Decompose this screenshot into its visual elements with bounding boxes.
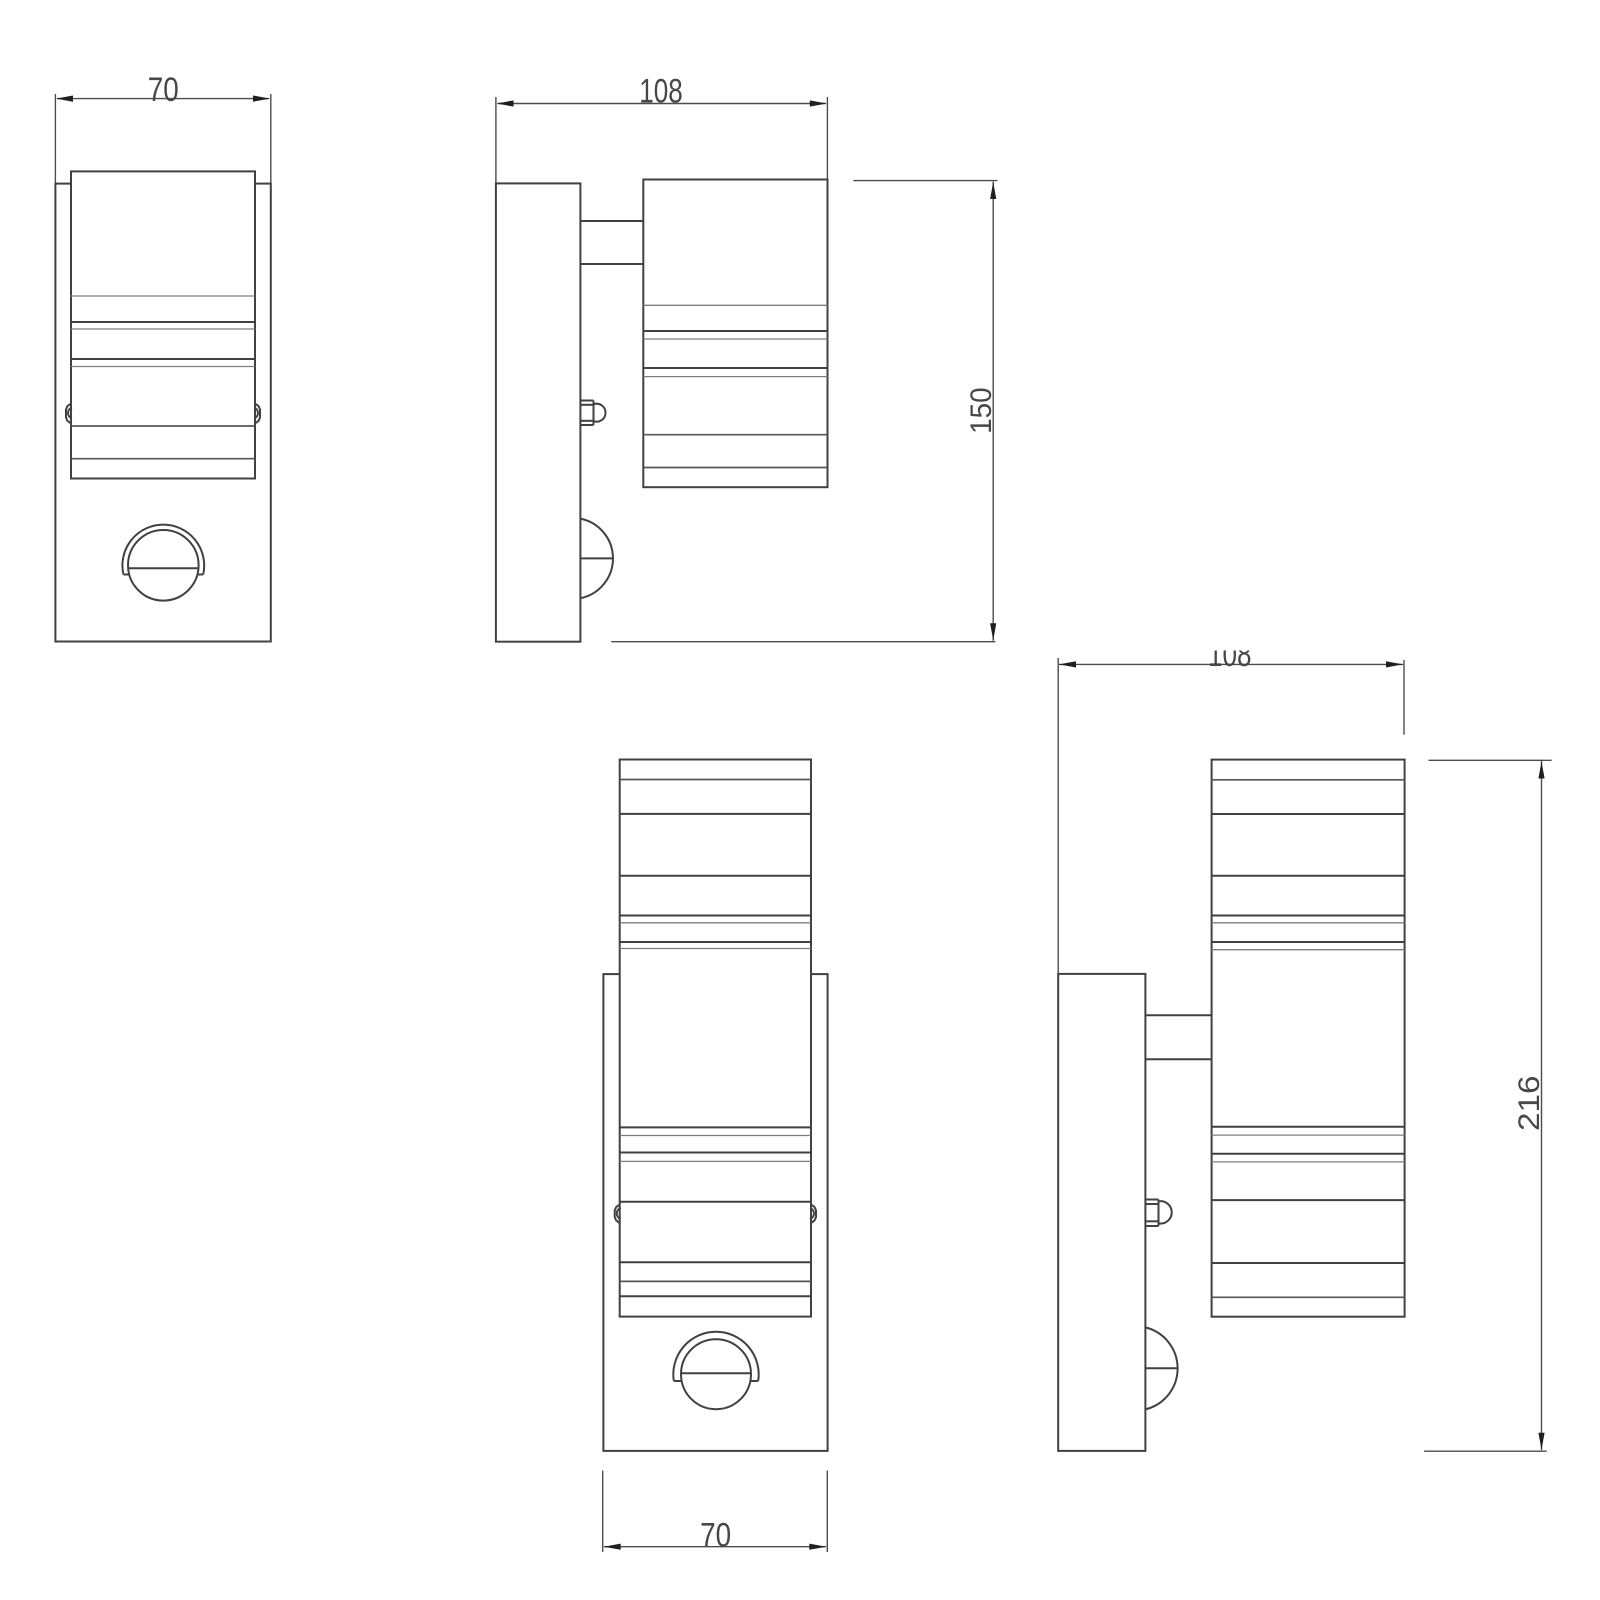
svg-text:70: 70: [148, 71, 179, 109]
svg-text:150: 150: [965, 387, 998, 434]
svg-text:70: 70: [700, 1517, 731, 1555]
svg-text:108: 108: [639, 73, 683, 111]
svg-text:216: 216: [1513, 1076, 1546, 1132]
